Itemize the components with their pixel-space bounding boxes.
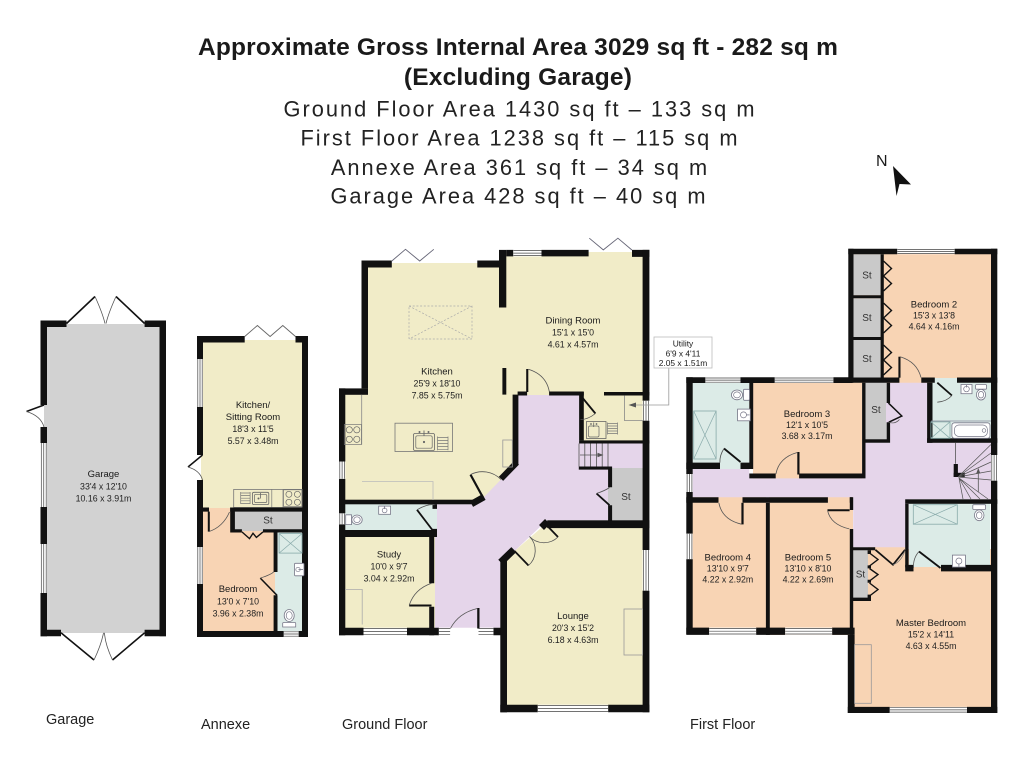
svg-text:10'0 x 9'7: 10'0 x 9'7 [370, 562, 407, 572]
svg-text:4.22 x 2.69m: 4.22 x 2.69m [783, 575, 834, 585]
svg-text:St: St [871, 405, 881, 416]
svg-text:3.68 x 3.17m: 3.68 x 3.17m [782, 431, 833, 441]
svg-text:Garage Area 428 sq ft – 40 sq: Garage Area 428 sq ft – 40 sq m [330, 184, 707, 209]
svg-text:Bedroom 2: Bedroom 2 [911, 300, 957, 311]
svg-text:Bedroom 4: Bedroom 4 [705, 553, 751, 564]
svg-text:Lounge: Lounge [557, 611, 589, 622]
svg-text:Ground Floor Area 1430 sq ft –: Ground Floor Area 1430 sq ft – 133 sq m [284, 97, 757, 122]
svg-text:Approximate Gross Internal Are: Approximate Gross Internal Area 3029 sq … [198, 34, 838, 61]
svg-text:First Floor: First Floor [690, 717, 755, 733]
svg-text:3.04 x 2.92m: 3.04 x 2.92m [364, 574, 415, 584]
svg-text:6.18 x 4.63m: 6.18 x 4.63m [548, 635, 599, 645]
svg-text:4.22 x 2.92m: 4.22 x 2.92m [702, 575, 753, 585]
svg-text:St: St [862, 354, 872, 365]
svg-text:4.63 x 4.55m: 4.63 x 4.55m [906, 641, 957, 651]
svg-text:St: St [862, 313, 872, 324]
svg-text:N: N [876, 153, 888, 170]
svg-text:18'3 x 11'5: 18'3 x 11'5 [232, 424, 273, 434]
svg-text:33'4 x 12'10: 33'4 x 12'10 [80, 482, 127, 492]
svg-text:Annexe: Annexe [201, 717, 250, 733]
svg-text:10.16 x 3.91m: 10.16 x 3.91m [76, 494, 132, 504]
svg-text:Study: Study [377, 550, 402, 561]
svg-text:15'1 x 15'0: 15'1 x 15'0 [552, 328, 594, 338]
svg-text:Bedroom 3: Bedroom 3 [784, 409, 830, 420]
svg-text:13'10 x 8'10: 13'10 x 8'10 [785, 564, 832, 574]
svg-text:(Excluding Garage): (Excluding Garage) [404, 64, 632, 91]
svg-text:Bedroom 5: Bedroom 5 [785, 553, 831, 564]
svg-text:15'2 x 14'11: 15'2 x 14'11 [908, 630, 954, 640]
svg-text:13'0 x 7'10: 13'0 x 7'10 [217, 597, 259, 607]
svg-text:Utility: Utility [673, 339, 694, 349]
svg-text:Bedroom: Bedroom [219, 584, 258, 595]
svg-text:St: St [856, 570, 866, 581]
svg-text:St: St [263, 516, 273, 527]
svg-text:St: St [862, 271, 872, 282]
svg-text:15'3 x 13'8: 15'3 x 13'8 [913, 311, 955, 321]
svg-text:Kitchen: Kitchen [421, 367, 453, 378]
svg-text:St: St [621, 492, 631, 503]
svg-text:4.64 x 4.16m: 4.64 x 4.16m [909, 322, 960, 332]
svg-text:Dining Room: Dining Room [546, 316, 601, 327]
svg-text:First Floor Area 1238 sq ft –: First Floor Area 1238 sq ft – 115 sq m [300, 126, 739, 151]
svg-text:Garage: Garage [88, 469, 120, 480]
svg-text:2.05 x 1.51m: 2.05 x 1.51m [659, 358, 707, 368]
svg-text:13'10 x 9'7: 13'10 x 9'7 [707, 564, 749, 574]
svg-text:Ground Floor: Ground Floor [342, 717, 428, 733]
svg-text:25'9 x 18'10: 25'9 x 18'10 [414, 379, 461, 389]
svg-text:4.61 x 4.57m: 4.61 x 4.57m [548, 340, 599, 350]
svg-text:Master Bedroom: Master Bedroom [896, 618, 966, 629]
svg-text:3.96 x 2.38m: 3.96 x 2.38m [213, 609, 264, 619]
svg-text:20'3 x 15'2: 20'3 x 15'2 [552, 623, 594, 633]
svg-text:6'9 x 4'11: 6'9 x 4'11 [666, 349, 701, 359]
svg-text:Sitting Room: Sitting Room [226, 412, 280, 423]
svg-text:7.85 x 5.75m: 7.85 x 5.75m [412, 391, 463, 401]
svg-text:Kitchen/: Kitchen/ [236, 400, 271, 411]
svg-text:Annexe Area 361 sq ft – 34 sq: Annexe Area 361 sq ft – 34 sq m [331, 155, 709, 180]
svg-text:Garage: Garage [46, 712, 94, 728]
svg-text:5.57 x 3.48m: 5.57 x 3.48m [228, 436, 279, 446]
svg-text:12'1 x 10'5: 12'1 x 10'5 [786, 420, 828, 430]
